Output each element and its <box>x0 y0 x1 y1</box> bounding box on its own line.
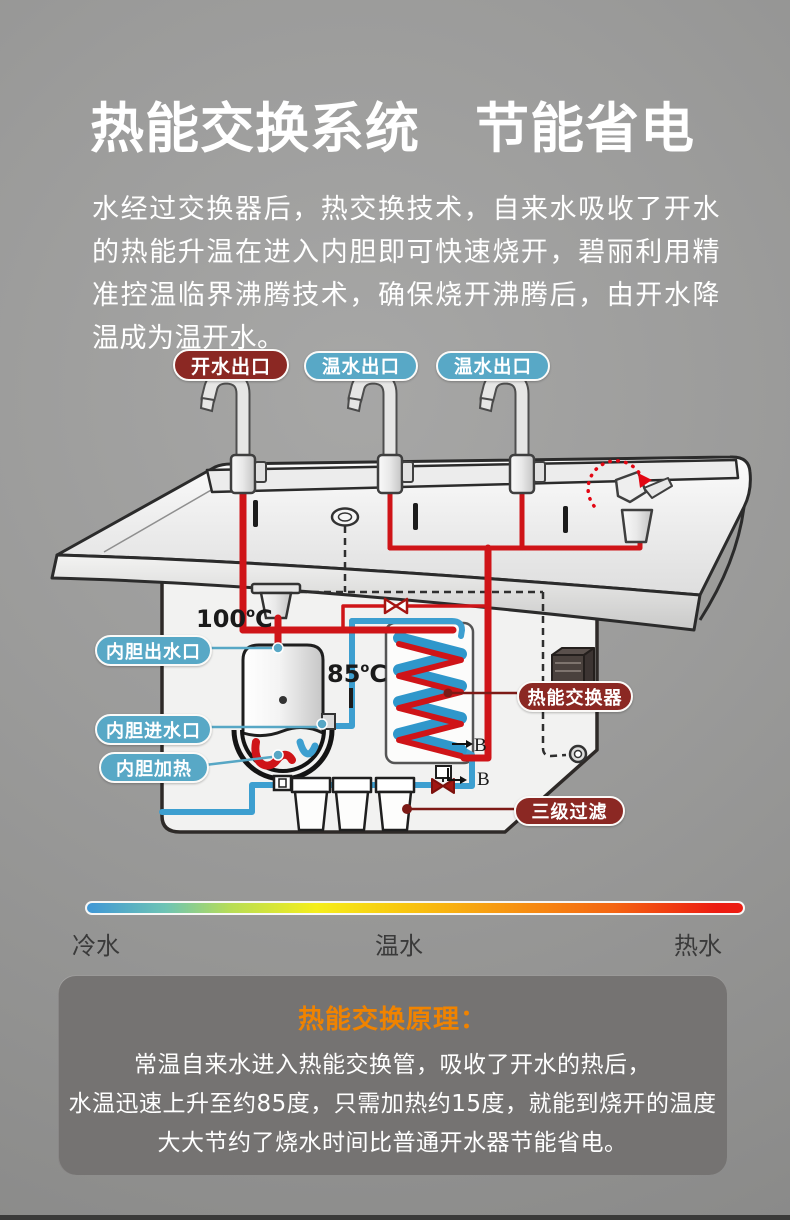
label-filters: 三级过滤 <box>514 796 625 826</box>
cable-gland <box>570 746 586 762</box>
svg-text:B: B <box>474 735 487 756</box>
principle-box: 热能交换原理： 常温自来水进入热能交换管，吸收了开水的热后， 水温迅速上升至约8… <box>58 975 727 1175</box>
label-tank-inlet: 内胆进水口 <box>95 714 212 745</box>
counter-slot <box>253 500 258 527</box>
principle-line-1: 常温自来水进入热能交换管，吸收了开水的热后， <box>58 1046 727 1085</box>
counter-slot <box>413 503 418 530</box>
section-divider <box>0 1215 790 1220</box>
outlet-label-warm-2: 温水出口 <box>436 351 550 381</box>
legend-cold-label: 冷水 <box>72 926 120 961</box>
outlet-label-warm-1: 温水出口 <box>304 351 418 381</box>
principle-line-2: 水温迅速上升至约85度，只需加热约15度，就能到烧开的温度 <box>58 1085 727 1124</box>
principle-line-3: 大大节约了烧水时间比普通开水器节能省电。 <box>58 1124 727 1163</box>
temp-warm: 85oC <box>327 660 387 688</box>
temperature-gradient-bar <box>85 901 745 915</box>
legend-hot-label: 热水 <box>674 926 722 961</box>
system-diagram: 100oC 85oC B B 开水出口 温水出口 温水出口 内胆出水口 内胆进水… <box>0 330 790 890</box>
label-heat-exchanger: 热能交换器 <box>517 681 633 712</box>
filter-cartridges <box>292 778 414 830</box>
temp-boiling: 100oC <box>196 605 273 633</box>
counter-drain <box>332 509 358 526</box>
diagram-drawing: 100oC 85oC B B <box>0 330 790 890</box>
label-tank-heater: 内胆加热 <box>99 752 209 783</box>
svg-text:B: B <box>477 769 490 790</box>
label-tank-outlet: 内胆出水口 <box>95 635 212 666</box>
counter-slot <box>563 506 568 533</box>
page-title: 热能交换系统 节能省电 <box>90 84 770 163</box>
outlet-label-boiling: 开水出口 <box>173 349 289 381</box>
temperature-legend: 冷水 温水 热水 <box>0 893 790 963</box>
principle-title: 热能交换原理： <box>58 999 727 1036</box>
legend-warm-label: 温水 <box>375 926 423 961</box>
